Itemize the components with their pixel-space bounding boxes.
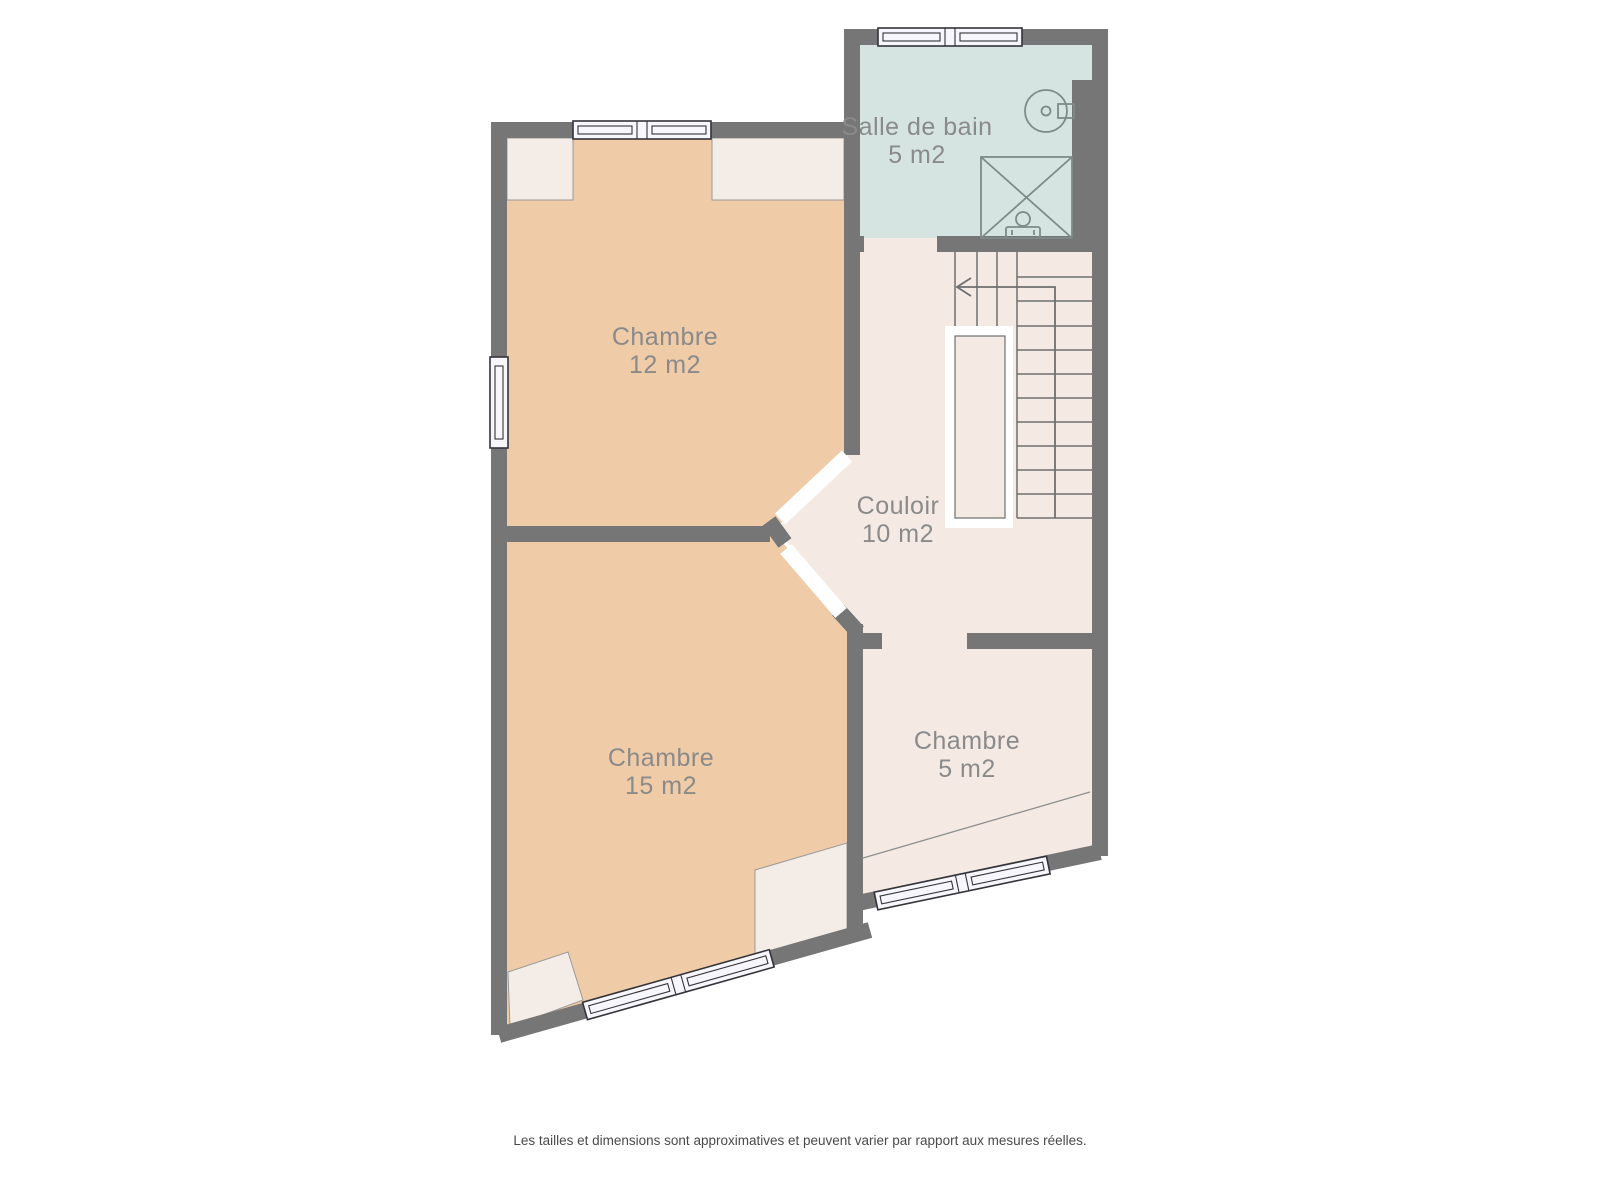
label-salle-de-bain-area: 5 m2 xyxy=(888,141,946,169)
label-salle-de-bain-name: Salle de bain xyxy=(841,113,992,141)
ceiling-patch-ch12-left xyxy=(507,138,573,200)
label-chambre-5-area: 5 m2 xyxy=(938,755,996,783)
window-ch12-top xyxy=(573,121,711,139)
floor-plan-drawing: Chambre 12 m2 Salle de bain 5 m2 Couloir… xyxy=(0,0,1600,1200)
label-chambre-12-area: 12 m2 xyxy=(629,351,701,379)
label-couloir-name: Couloir xyxy=(857,492,940,520)
label-chambre-15-name: Chambre xyxy=(608,744,714,772)
window-bath-top xyxy=(878,28,1022,46)
label-chambre-5-name: Chambre xyxy=(914,727,1020,755)
label-couloir-area: 10 m2 xyxy=(862,520,934,548)
stairwell-opening xyxy=(955,336,1005,518)
window-ch12-left xyxy=(490,357,508,448)
disclaimer-text: Les tailles et dimensions sont approxima… xyxy=(0,1133,1600,1148)
ceiling-patch-ch12-right xyxy=(712,138,844,200)
wall-bath-notch xyxy=(1072,80,1092,238)
label-chambre-12-name: Chambre xyxy=(612,323,718,351)
label-chambre-15-area: 15 m2 xyxy=(625,772,697,800)
floor-plan-page: Chambre 12 m2 Salle de bain 5 m2 Couloir… xyxy=(0,0,1600,1200)
